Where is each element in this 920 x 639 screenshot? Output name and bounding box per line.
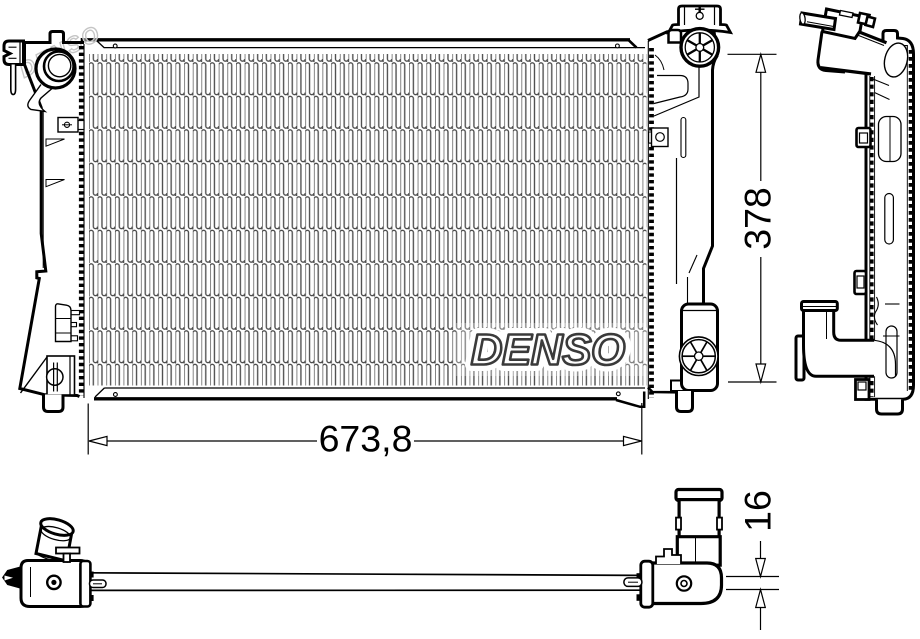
svg-text:DENSO: DENSO [471, 326, 625, 375]
svg-text:673,8: 673,8 [319, 418, 413, 460]
svg-text:378: 378 [737, 187, 779, 250]
svg-text:16: 16 [736, 490, 778, 532]
